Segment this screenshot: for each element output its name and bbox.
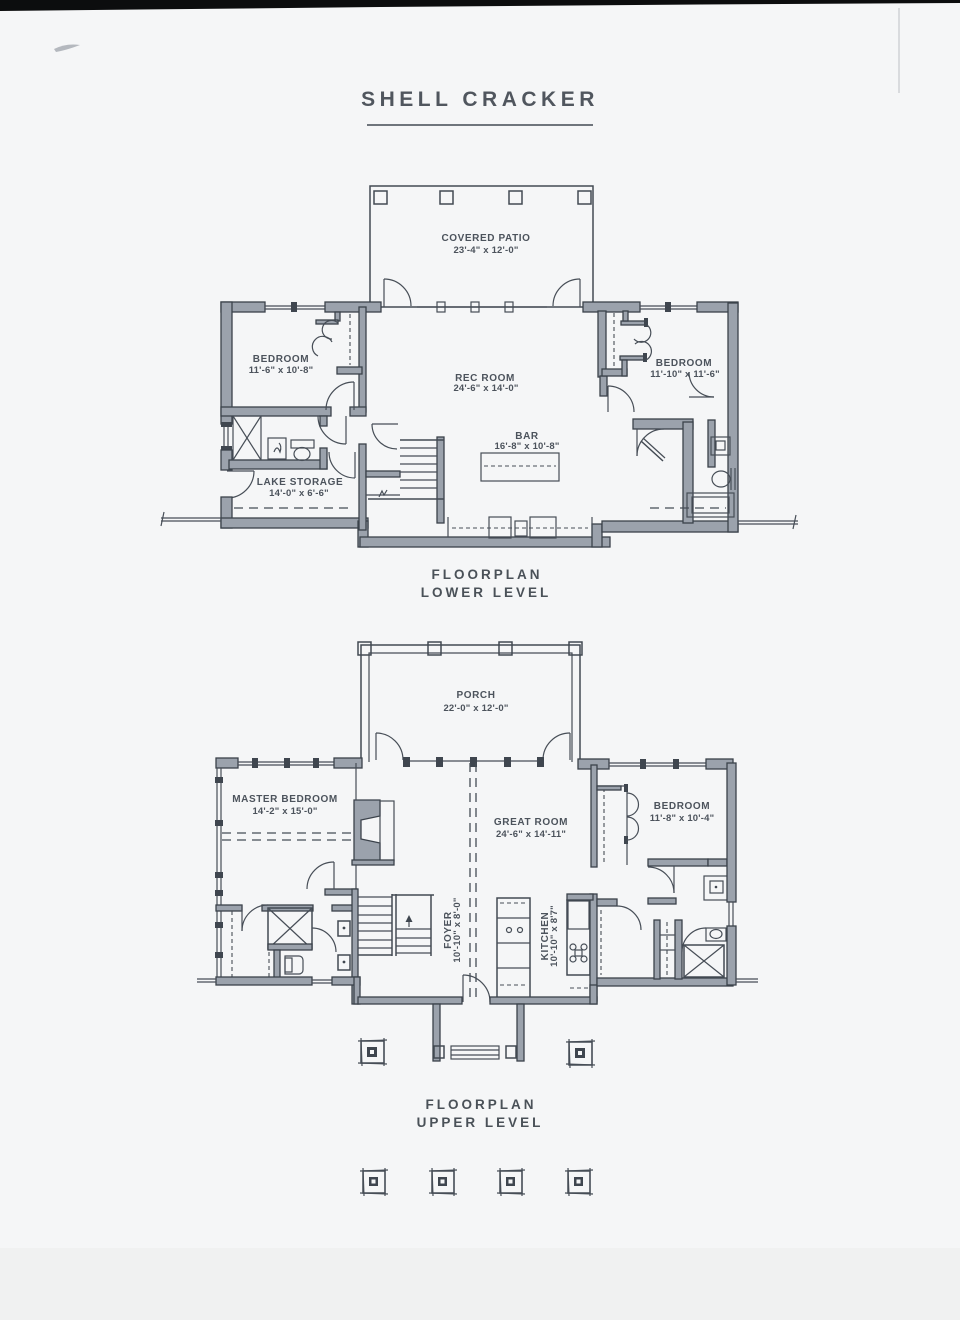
- svg-text:COVERED PATIO: COVERED PATIO: [441, 233, 530, 244]
- svg-text:BEDROOM: BEDROOM: [253, 354, 309, 365]
- svg-text:FLOORPLAN: FLOORPLAN: [432, 567, 543, 582]
- svg-text:16'-8" x 10'-8": 16'-8" x 10'-8": [494, 441, 559, 452]
- svg-text:BEDROOM: BEDROOM: [656, 358, 712, 369]
- svg-text:BEDROOM: BEDROOM: [654, 801, 710, 812]
- svg-text:10'-10" x 8'7": 10'-10" x 8'7": [549, 905, 560, 967]
- svg-text:PORCH: PORCH: [456, 690, 495, 701]
- svg-text:LAKE STORAGE: LAKE STORAGE: [257, 477, 343, 488]
- svg-text:11'-6" x 10'-8": 11'-6" x 10'-8": [249, 365, 314, 376]
- svg-text:SHELL CRACKER: SHELL CRACKER: [361, 88, 599, 111]
- svg-text:10'-10" x 8'-0": 10'-10" x 8'-0": [452, 897, 463, 962]
- svg-text:11'-10" x 11'-6": 11'-10" x 11'-6": [650, 369, 720, 380]
- svg-text:UPPER LEVEL: UPPER LEVEL: [417, 1115, 544, 1130]
- svg-text:FLOORPLAN: FLOORPLAN: [426, 1097, 537, 1112]
- svg-text:14'-0" x 6'-6": 14'-0" x 6'-6": [269, 488, 329, 499]
- svg-text:23'-4" x 12'-0": 23'-4" x 12'-0": [453, 245, 518, 256]
- svg-text:24'-6" x 14'-0": 24'-6" x 14'-0": [453, 383, 518, 394]
- svg-text:MASTER BEDROOM: MASTER BEDROOM: [232, 794, 338, 805]
- svg-text:24'-6" x 14'-11": 24'-6" x 14'-11": [496, 829, 566, 840]
- svg-text:14'-2" x 15'-0": 14'-2" x 15'-0": [252, 806, 317, 817]
- svg-text:22'-0" x 12'-0": 22'-0" x 12'-0": [443, 703, 508, 714]
- svg-text:LOWER LEVEL: LOWER LEVEL: [421, 585, 552, 600]
- svg-text:GREAT ROOM: GREAT ROOM: [494, 817, 568, 828]
- svg-text:11'-8" x 10'-4": 11'-8" x 10'-4": [650, 813, 715, 824]
